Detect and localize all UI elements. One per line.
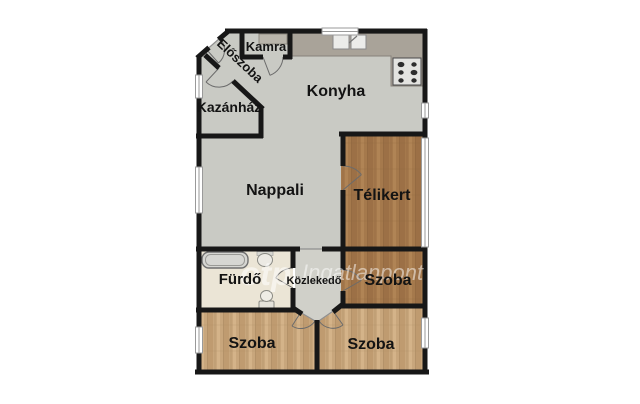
label-nappali: Nappali bbox=[246, 182, 304, 199]
floor-plan-image: otp Ingatlanpont Kamra Előszoba Kazánház… bbox=[0, 0, 640, 404]
label-kazanhaz: Kazánház bbox=[197, 99, 262, 115]
window-kitchen-right bbox=[422, 103, 429, 118]
window-nappali-left bbox=[196, 167, 203, 213]
label-kozlekedo: Közlekedő bbox=[286, 275, 341, 287]
label-szoba-bottom-right: Szoba bbox=[347, 336, 394, 353]
window-szoba-bl-left bbox=[196, 327, 203, 353]
window-szoba-right bbox=[422, 318, 429, 348]
label-konyha: Konyha bbox=[307, 83, 366, 100]
label-kamra: Kamra bbox=[246, 39, 287, 54]
kitchen-sink bbox=[333, 35, 366, 49]
floor-plan-svg: otp Ingatlanpont Kamra Előszoba Kazánház… bbox=[0, 0, 640, 404]
label-szoba-right: Szoba bbox=[364, 272, 411, 289]
label-furdo: Fürdő bbox=[219, 271, 262, 288]
label-szoba-bottom-left: Szoba bbox=[228, 335, 275, 352]
window-kazanhaz-left bbox=[196, 75, 203, 98]
window-telikert-glass-wall bbox=[422, 138, 429, 247]
stove bbox=[393, 58, 421, 85]
window-top bbox=[322, 28, 358, 35]
label-telikert: Télikert bbox=[354, 187, 412, 204]
